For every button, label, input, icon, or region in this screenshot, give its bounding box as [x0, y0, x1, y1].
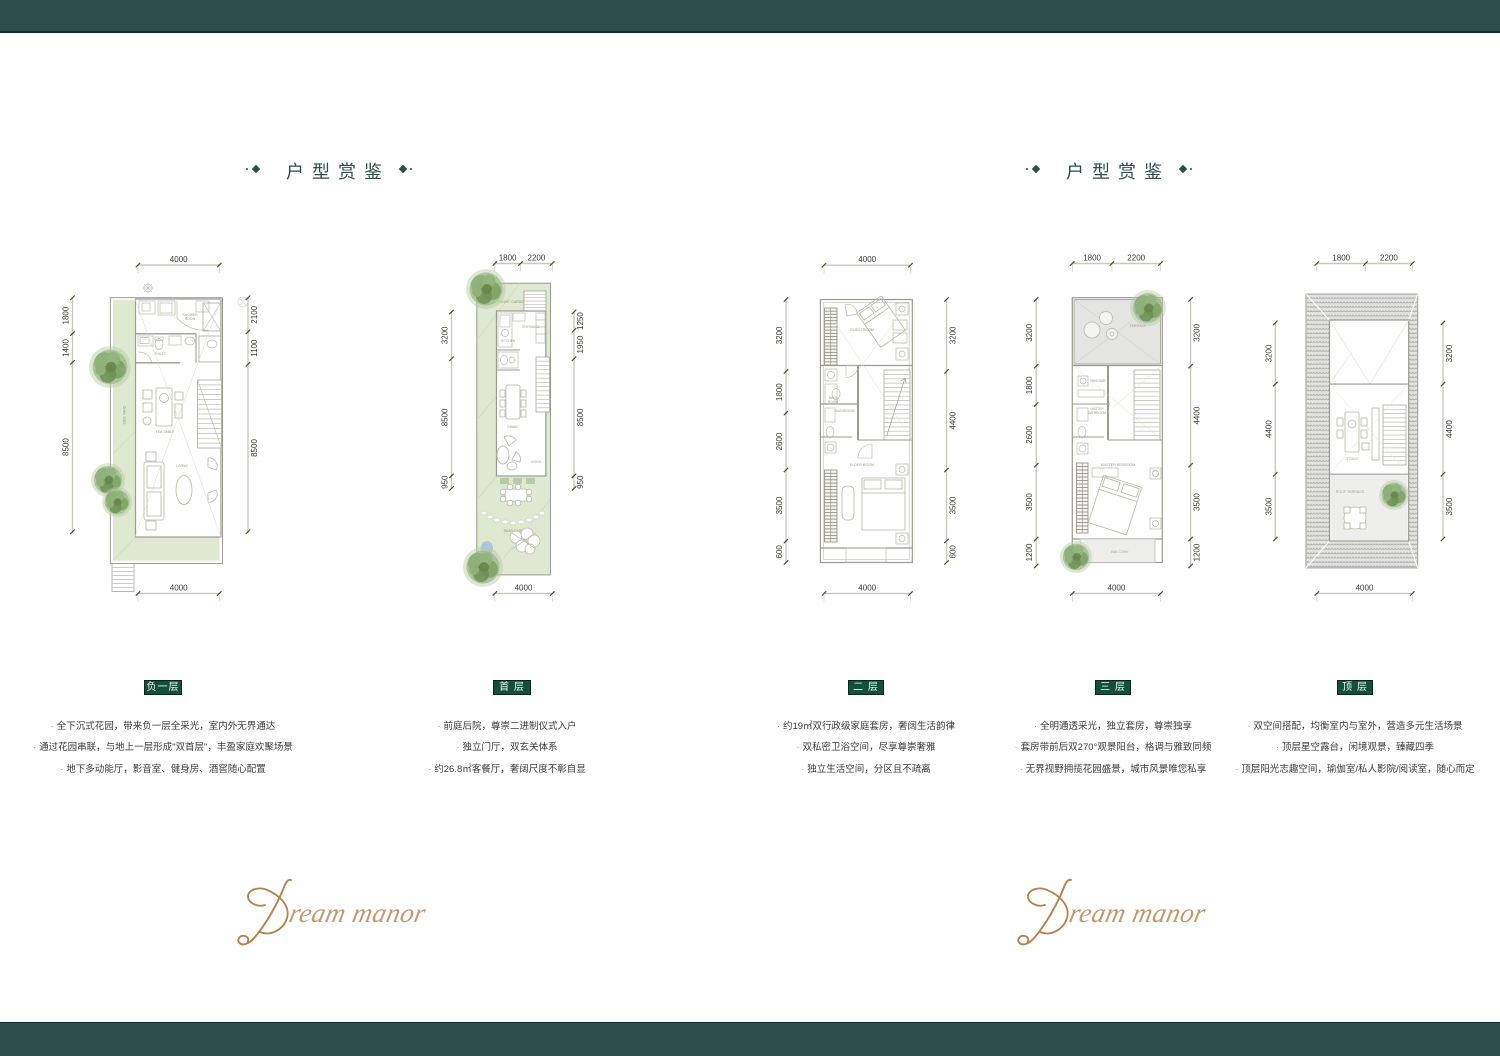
- svg-text:4400: 4400: [1445, 420, 1454, 438]
- svg-text:4000: 4000: [515, 584, 533, 593]
- svg-text:2200: 2200: [1380, 254, 1398, 263]
- svg-text:3200: 3200: [1025, 323, 1034, 341]
- svg-text:3500: 3500: [1445, 497, 1454, 515]
- svg-text:DINING: DINING: [507, 425, 519, 429]
- svg-text:4000: 4000: [1356, 584, 1374, 593]
- svg-text:3500: 3500: [775, 496, 784, 514]
- svg-text:TOILET: TOILET: [154, 352, 166, 356]
- svg-text:1800: 1800: [1025, 376, 1034, 394]
- svg-text:1400: 1400: [62, 339, 71, 357]
- svg-text:1200: 1200: [1193, 543, 1202, 561]
- svg-text:4400: 4400: [1193, 406, 1202, 424]
- svg-text:ELDER ROOM: ELDER ROOM: [850, 463, 874, 467]
- svg-text:TEA TABLE: TEA TABLE: [156, 430, 175, 434]
- svg-text:4000: 4000: [1108, 584, 1126, 593]
- svg-text:3500: 3500: [1264, 497, 1273, 515]
- svg-text:4000: 4000: [170, 584, 188, 593]
- svg-text:8500: 8500: [62, 438, 71, 456]
- svg-text:2600: 2600: [775, 432, 784, 450]
- svg-text:ream manor: ream manor: [287, 898, 429, 928]
- svg-text:8500: 8500: [576, 408, 585, 426]
- svg-text:3200: 3200: [1264, 344, 1273, 362]
- svg-text:1800: 1800: [775, 383, 784, 401]
- svg-text:3500: 3500: [949, 496, 958, 514]
- svg-text:STUDY: STUDY: [1346, 457, 1359, 461]
- svg-text:ream manor: ream manor: [1067, 898, 1209, 928]
- svg-text:950: 950: [441, 475, 450, 489]
- svg-text:1800: 1800: [62, 306, 71, 324]
- svg-text:600: 600: [775, 545, 784, 559]
- svg-text:4400: 4400: [949, 411, 958, 429]
- svg-text:ROOM: ROOM: [185, 317, 196, 321]
- svg-text:3200: 3200: [1445, 344, 1454, 362]
- svg-text:8500: 8500: [250, 439, 259, 457]
- svg-text:3200: 3200: [775, 326, 784, 344]
- svg-text:1250: 1250: [576, 312, 585, 330]
- svg-text:600: 600: [949, 545, 958, 559]
- svg-text:2600: 2600: [1025, 425, 1034, 443]
- svg-text:GUESTROOM: GUESTROOM: [850, 328, 874, 332]
- svg-text:ENTRANCE: ENTRANCE: [522, 325, 540, 329]
- svg-text:2100: 2100: [250, 305, 259, 323]
- svg-text:1800: 1800: [1332, 254, 1350, 263]
- svg-text:950: 950: [576, 475, 585, 489]
- svg-text:1800: 1800: [1083, 254, 1101, 263]
- svg-text:4400: 4400: [1264, 420, 1273, 438]
- svg-text:3200: 3200: [441, 326, 450, 344]
- svg-text:SIDE YARD: SIDE YARD: [123, 405, 127, 424]
- svg-text:MASTER BEDROOM: MASTER BEDROOM: [1101, 463, 1136, 467]
- svg-text:BATHROOM: BATHROOM: [1088, 411, 1107, 415]
- svg-text:KITCHEN: KITCHEN: [501, 339, 516, 343]
- svg-text:LIVING: LIVING: [531, 460, 542, 464]
- svg-text:2200: 2200: [528, 254, 546, 263]
- svg-text:4000: 4000: [170, 255, 188, 264]
- svg-text:3500: 3500: [1025, 493, 1034, 511]
- svg-text:1950: 1950: [576, 335, 585, 353]
- svg-text:ROOF TERRACE: ROOF TERRACE: [1336, 490, 1365, 494]
- svg-text:1200: 1200: [1025, 543, 1034, 561]
- svg-text:BATHROOM: BATHROOM: [835, 409, 855, 413]
- svg-text:LIVING: LIVING: [176, 464, 188, 468]
- svg-text:3200: 3200: [949, 326, 958, 344]
- svg-text:4000: 4000: [858, 584, 876, 593]
- svg-text:BALCONY: BALCONY: [1111, 550, 1129, 554]
- svg-text:8500: 8500: [441, 408, 450, 426]
- svg-text:1800: 1800: [499, 254, 517, 263]
- svg-text:2200: 2200: [1127, 254, 1145, 263]
- svg-text:3500: 3500: [1193, 493, 1202, 511]
- svg-text:4000: 4000: [858, 255, 876, 264]
- svg-text:1100: 1100: [250, 339, 259, 357]
- svg-text:3200: 3200: [1193, 323, 1202, 341]
